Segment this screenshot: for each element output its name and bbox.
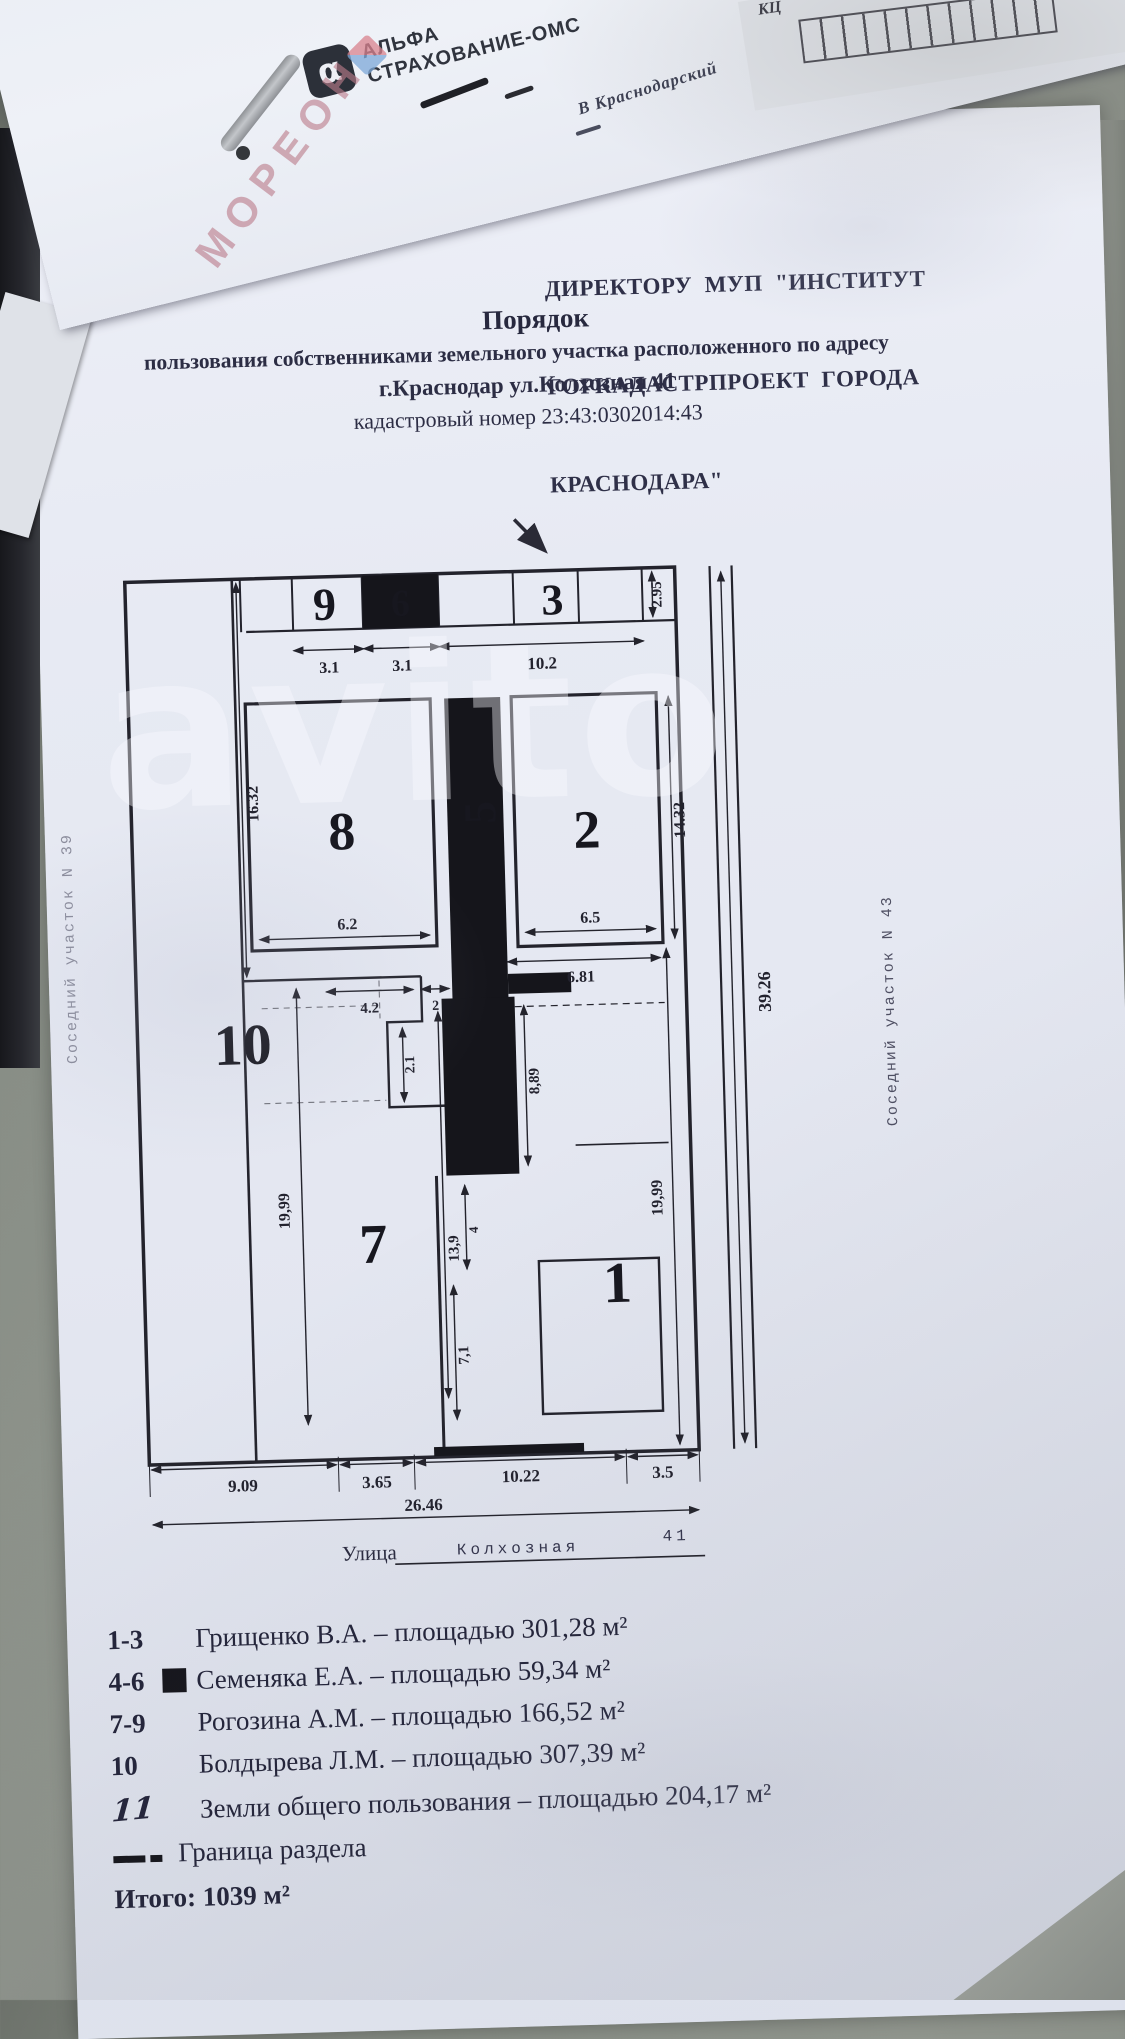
alfa-logo-text: АЛЬФА СТРАХОВАНИЕ-ОМС: [359, 0, 584, 90]
legend-key: 1-3: [107, 1623, 196, 1656]
ink-mark: [420, 77, 490, 109]
dim-label: 7,1: [456, 1346, 473, 1365]
dim-label: 10.22: [501, 1466, 540, 1486]
left-neighbor-label: Соседний участок N 39: [57, 774, 82, 1064]
dim-label: 4: [466, 1226, 481, 1233]
legend-text: Рогозина А.М. – площадью 166,52 м²: [197, 1695, 625, 1738]
right-neighbor-label: Соседний участок N 43: [877, 826, 902, 1126]
legend-text: Грищенко В.А. – площадью 301,28 м²: [195, 1611, 628, 1654]
dim-label: 9.09: [228, 1476, 258, 1496]
table-dark-edge: [0, 128, 40, 1068]
street-number: 41: [662, 1527, 690, 1546]
ink-mark: [504, 85, 534, 99]
dim-label: 26.46: [404, 1495, 443, 1515]
photo-of-document: { "photo": { "alpha_logo": { "symbol": "…: [0, 0, 1125, 2000]
legend-key-handwritten: 11: [110, 1791, 155, 1830]
legend-key: 7-9: [109, 1707, 198, 1740]
dim-label: 4.2: [360, 1000, 379, 1017]
dim-label: 2: [432, 999, 439, 1014]
legend-text: Земли общего пользования – площадью 204,…: [200, 1778, 772, 1825]
dim-label: 6.5: [580, 909, 600, 927]
dim-label: 19,99: [276, 1193, 294, 1229]
dim-label: 2.1: [403, 1056, 418, 1074]
legend-text: Болдырева Л.М. – площадью 307,39 м²: [198, 1736, 645, 1779]
avito-watermark: avito: [97, 592, 733, 859]
boundary-dash-icon: [113, 1855, 162, 1863]
dim-label: 3.5: [652, 1462, 674, 1482]
street-name: Колхозная: [457, 1538, 580, 1559]
plot-10-label: 10: [213, 1011, 273, 1078]
dim-label: 3.65: [362, 1472, 392, 1492]
plot-7-label: 7: [358, 1213, 388, 1276]
legend-text: Граница раздела: [178, 1832, 367, 1868]
dim-label: 6.81: [567, 968, 595, 986]
dim-label: 6.2: [337, 916, 357, 934]
black-square-icon: [162, 1668, 187, 1693]
legend-text: Семеняка Е.А. – площадью 59,34 м²: [196, 1653, 611, 1696]
dim-label: 13,9: [446, 1235, 463, 1262]
street-label: Улица: [342, 1540, 398, 1566]
addressee-line: КРАСНОДАРА": [550, 459, 932, 502]
plot-1-label: 1: [602, 1250, 633, 1316]
dim-label: 39.26: [754, 971, 775, 1012]
legend: 1-3 Грищенко В.А. – площадью 301,28 м² 4…: [107, 1598, 1105, 1916]
handwritten-note: В Краснодарский: [575, 58, 719, 119]
handwritten-mark: [575, 124, 601, 136]
legend-key: 10: [110, 1749, 199, 1782]
dim-label: 19,99: [649, 1180, 667, 1216]
pen-tip: [236, 146, 250, 160]
main-document: ДИРЕКТОРУ МУП "ИНСТИТУТ ГОРКАДАСТРПРОЕКТ…: [25, 105, 1125, 2039]
dim-label: 8,89: [526, 1068, 543, 1095]
street-labels: Улица Колхозная 41: [341, 1527, 690, 1566]
